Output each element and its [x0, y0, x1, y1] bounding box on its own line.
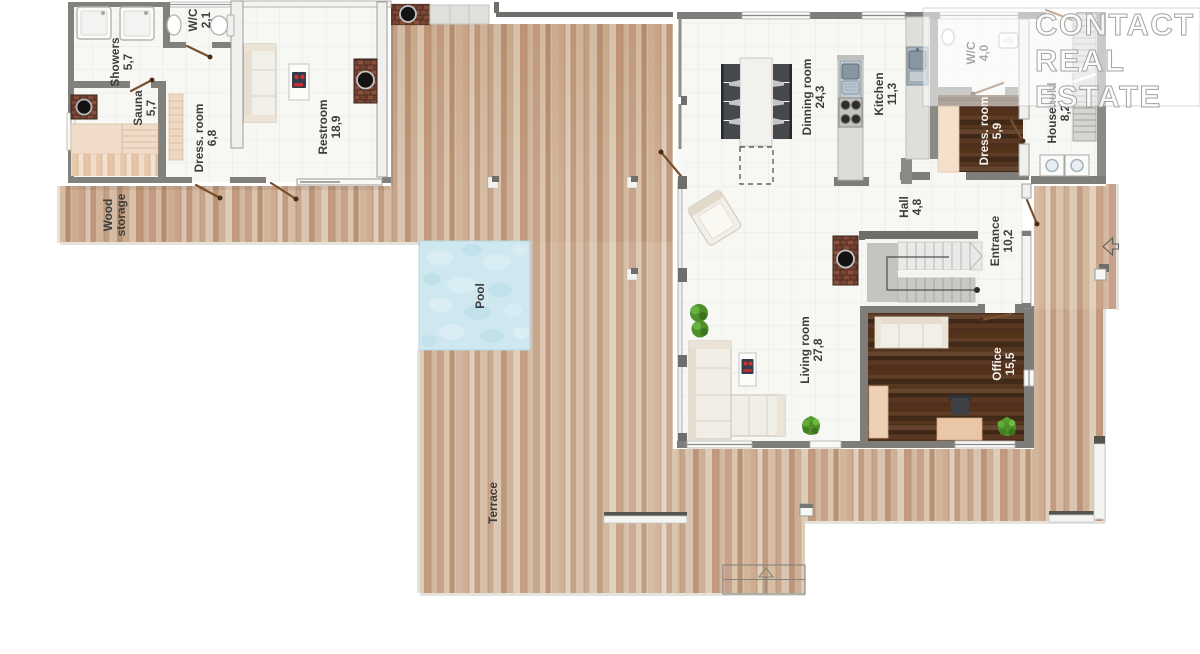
svg-text:Entrance: Entrance: [988, 215, 1002, 266]
svg-text:W/C: W/C: [186, 8, 200, 31]
svg-text:Dress. room: Dress. room: [977, 97, 991, 166]
svg-text:REAL: REAL: [1035, 43, 1125, 78]
svg-text:Dinning room: Dinning room: [800, 59, 814, 136]
svg-text:Showers: Showers: [108, 37, 122, 87]
svg-text:ESTATE: ESTATE: [1035, 79, 1162, 114]
svg-text:Hall: Hall: [897, 196, 911, 218]
svg-text:Terrace: Terrace: [486, 482, 500, 524]
svg-text:Living room: Living room: [798, 316, 812, 384]
svg-text:11,3: 11,3: [885, 82, 899, 105]
svg-text:27,8: 27,8: [811, 338, 825, 361]
svg-text:18,9: 18,9: [329, 115, 343, 138]
svg-text:Wood: Wood: [101, 199, 115, 232]
svg-text:5,9: 5,9: [990, 122, 1004, 139]
svg-text:storage: storage: [114, 193, 128, 236]
svg-text:CONTACT: CONTACT: [1035, 7, 1195, 42]
svg-text:24,3: 24,3: [813, 85, 827, 108]
svg-text:5,7: 5,7: [144, 99, 158, 116]
svg-text:10,2: 10,2: [1001, 229, 1015, 252]
svg-text:5,7: 5,7: [121, 53, 135, 70]
svg-text:Dress. room: Dress. room: [192, 104, 206, 173]
svg-text:4,8: 4,8: [910, 198, 924, 215]
svg-text:2,1: 2,1: [199, 11, 213, 28]
svg-text:Sauna: Sauna: [131, 90, 145, 126]
svg-text:15,5: 15,5: [1003, 352, 1017, 375]
svg-text:Pool: Pool: [473, 283, 487, 309]
svg-text:6,8: 6,8: [205, 129, 219, 146]
svg-text:Kitchen: Kitchen: [872, 72, 886, 115]
svg-text:Restroom: Restroom: [316, 99, 330, 154]
svg-text:Office: Office: [990, 347, 1004, 381]
